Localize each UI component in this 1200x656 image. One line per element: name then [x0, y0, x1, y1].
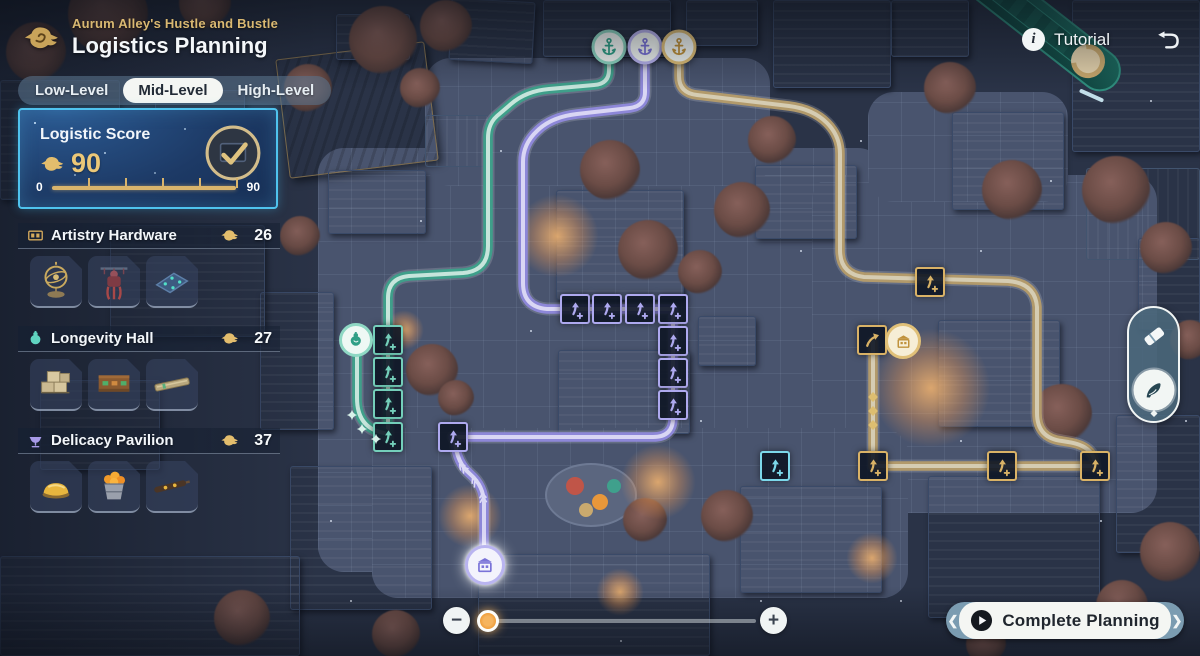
- star-specks: [34, 122, 36, 124]
- tutorial-button[interactable]: i Tutorial: [1022, 28, 1110, 51]
- event-subtitle: Aurum Alley's Hustle and Bustle: [72, 16, 278, 31]
- route-node-linked[interactable]: [857, 325, 887, 355]
- route-node-upgrade[interactable]: [438, 422, 468, 452]
- eraser-tool-button[interactable]: [1139, 321, 1169, 351]
- item-tile-crate-stack[interactable]: [30, 359, 82, 411]
- score-complete-badge: [204, 124, 262, 182]
- item-tile-fruit-basket[interactable]: [88, 461, 140, 513]
- route-node-upgrade[interactable]: [658, 390, 688, 420]
- pen-tool-button[interactable]: [1133, 370, 1174, 411]
- route-node-upgrade[interactable]: [560, 294, 590, 324]
- pen-icon: [1140, 377, 1167, 404]
- star: [700, 420, 702, 422]
- section-artistry-hardware[interactable]: Artistry Hardware 26: [18, 223, 280, 249]
- logistic-bird-icon: [219, 225, 240, 246]
- star: [860, 140, 862, 142]
- longevity-items: [30, 359, 198, 411]
- section-count: 27: [246, 330, 272, 348]
- page-header: Aurum Alley's Hustle and Bustle Logistic…: [20, 16, 278, 59]
- logistics-planning-screen: Aurum Alley's Hustle and Bustle Logistic…: [0, 0, 1200, 656]
- zoom-in-button[interactable]: +: [760, 607, 787, 634]
- section-count: 26: [246, 227, 272, 245]
- section-delicacy-pavilion[interactable]: Delicacy Pavilion 37: [18, 428, 280, 454]
- star: [1050, 180, 1052, 182]
- artistry-items: [30, 256, 198, 308]
- bar-max-label: 90: [247, 180, 260, 194]
- bar-tick: [88, 178, 90, 188]
- bar-tick: [125, 178, 127, 188]
- logistic-score-panel: Logistic Score 90 0 90: [18, 108, 278, 209]
- item-tile-goods-shelf[interactable]: [88, 359, 140, 411]
- star: [760, 600, 762, 602]
- section-name: Delicacy Pavilion: [51, 432, 213, 449]
- bar-tick: [162, 178, 164, 188]
- star: [800, 250, 802, 252]
- chest-icon: [26, 226, 45, 245]
- route-node-upgrade[interactable]: [658, 326, 688, 356]
- item-tile-marionette[interactable]: [88, 256, 140, 308]
- star: [980, 250, 982, 252]
- route-node-upgrade[interactable]: [625, 294, 655, 324]
- star: [900, 600, 902, 602]
- bar-tick: [199, 178, 201, 188]
- aurum-alley-emblem-icon: [20, 17, 62, 59]
- button-cap-left: ❮: [947, 606, 959, 635]
- star: [500, 150, 502, 152]
- complete-planning-label: Complete Planning: [1002, 611, 1159, 631]
- section-name: Longevity Hall: [51, 330, 213, 347]
- route-node-upgrade[interactable]: [915, 267, 945, 297]
- zoom-out-button[interactable]: −: [443, 607, 470, 634]
- play-icon: [970, 609, 993, 632]
- level-tab-bar: Low-LevelMid-LevelHigh-Level: [18, 76, 331, 105]
- route-node-upgrade[interactable]: [658, 358, 688, 388]
- tutorial-label: Tutorial: [1054, 30, 1110, 50]
- section-count: 37: [246, 432, 272, 450]
- route-node-upgrade[interactable]: [373, 422, 403, 452]
- route-node-upgrade[interactable]: [373, 325, 403, 355]
- zoom-slider-track[interactable]: [478, 619, 756, 623]
- item-tile-golden-pastry[interactable]: [30, 461, 82, 513]
- score-title: Logistic Score: [40, 126, 150, 144]
- star: [1185, 420, 1187, 422]
- score-value: 90: [71, 148, 101, 179]
- info-icon: i: [1022, 28, 1045, 51]
- route-node-upgrade[interactable]: [1080, 451, 1110, 481]
- bar-line: [52, 186, 236, 190]
- logistic-bird-icon: [219, 328, 240, 349]
- back-icon[interactable]: [1154, 27, 1182, 55]
- eraser-icon: [1139, 321, 1169, 351]
- star: [620, 640, 622, 642]
- route-node-upgrade[interactable]: [760, 451, 790, 481]
- route-node-upgrade[interactable]: [373, 389, 403, 419]
- page-title: Logistics Planning: [72, 33, 278, 59]
- logistic-bird-icon: [219, 430, 240, 451]
- bar-min-label: 0: [36, 180, 43, 194]
- score-progress-bar: 0 90: [36, 181, 260, 195]
- complete-planning-button[interactable]: ❮ Complete Planning ❯: [946, 602, 1184, 639]
- delicacy-items: [30, 461, 198, 513]
- route-node-upgrade[interactable]: [658, 294, 688, 324]
- section-longevity-hall[interactable]: Longevity Hall 27: [18, 326, 280, 352]
- star: [530, 330, 532, 332]
- item-tile-craft-mat[interactable]: [146, 256, 198, 308]
- star: [420, 220, 422, 222]
- route-node-upgrade[interactable]: [858, 451, 888, 481]
- section-name: Artistry Hardware: [51, 227, 213, 244]
- route-node-upgrade[interactable]: [592, 294, 622, 324]
- bowl-icon: [26, 431, 45, 450]
- tab-low-level[interactable]: Low-Level: [20, 78, 123, 103]
- drawing-tool-panel: [1127, 306, 1180, 423]
- dock-anchor-purple[interactable]: [628, 30, 663, 65]
- route-node-upgrade[interactable]: [987, 451, 1017, 481]
- bar-tick: [236, 178, 238, 188]
- star: [960, 440, 962, 442]
- tab-mid-level[interactable]: Mid-Level: [123, 78, 222, 103]
- item-tile-armillary-sphere[interactable]: [30, 256, 82, 308]
- item-tile-long-plank[interactable]: [146, 359, 198, 411]
- star: [1100, 520, 1102, 522]
- star: [350, 600, 352, 602]
- button-cap-right: ❯: [1171, 606, 1183, 635]
- star: [330, 520, 332, 522]
- dock-anchor-gold[interactable]: [662, 30, 697, 65]
- star: [1150, 100, 1152, 102]
- gourd-icon: [26, 329, 45, 348]
- tab-high-level[interactable]: High-Level: [223, 78, 330, 103]
- tool-panel-nub: [1150, 410, 1157, 417]
- zoom-slider-knob[interactable]: [477, 610, 499, 632]
- route-node-upgrade[interactable]: [373, 357, 403, 387]
- dock-anchor-teal[interactable]: [592, 30, 627, 65]
- logistic-bird-icon: [38, 150, 66, 178]
- item-tile-skewer-board[interactable]: [146, 461, 198, 513]
- star: [540, 90, 542, 92]
